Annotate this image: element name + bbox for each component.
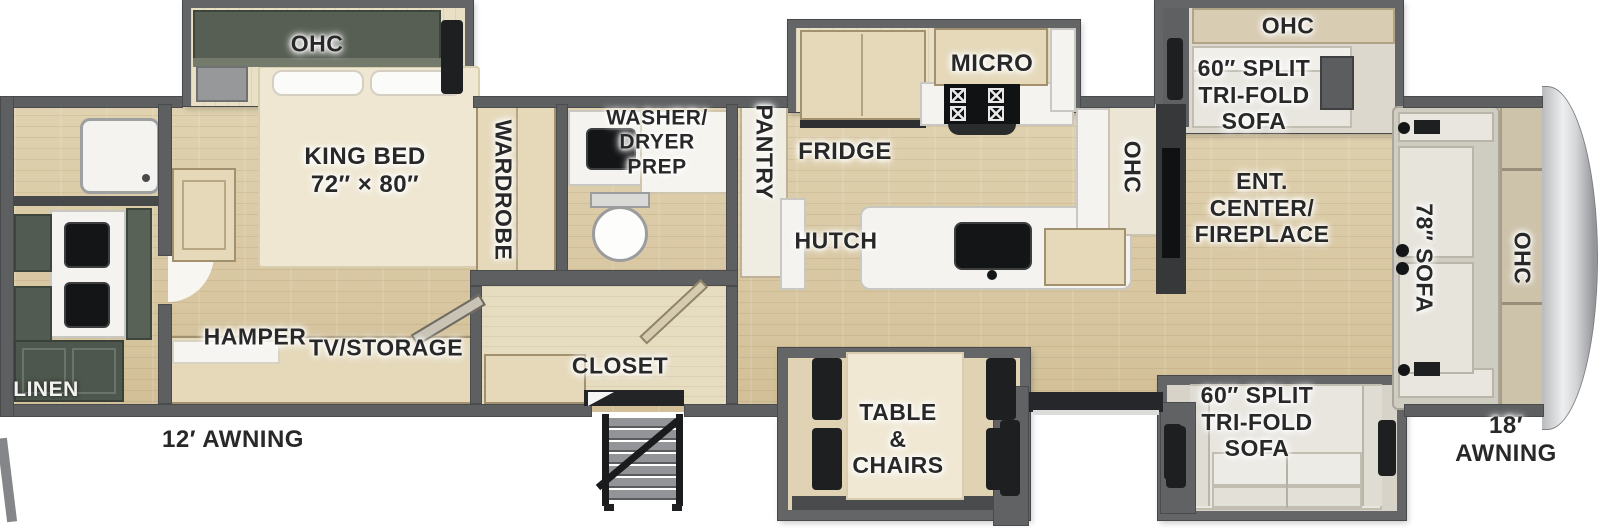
island-base-cabinet <box>1044 228 1126 286</box>
front-sofa-console <box>1414 362 1440 376</box>
entry-step <box>609 478 676 488</box>
entry-steps-rail <box>602 414 609 506</box>
bath-tall-cabinet <box>126 208 152 340</box>
wardrobe-label: WARDROBE <box>490 120 517 261</box>
fridge-counter-strip <box>800 120 926 128</box>
entry-step <box>609 454 676 464</box>
vanity-sink <box>64 222 110 268</box>
rv-floorplan: OHC KING BED 72″ × 80″ WARDROBE WASHER/ … <box>0 0 1600 528</box>
fridge-label: FRIDGE <box>798 138 892 166</box>
front-entry-post-window <box>1166 426 1186 488</box>
bed-pillow <box>272 70 364 96</box>
stove-burner <box>950 106 966 121</box>
front-entry-post-window <box>1000 420 1020 496</box>
stove-burner <box>988 106 1004 121</box>
entry-steps-foot <box>604 504 614 511</box>
front-sofa-label: 78″ SOFA <box>1411 203 1438 313</box>
ent-center-fireplace-label: ENT. CENTER/ FIREPLACE <box>1195 168 1330 248</box>
toilet-bowl <box>592 206 648 262</box>
front-sofa-cupholder <box>1398 364 1410 376</box>
entry-door-swing <box>588 392 614 406</box>
entry-steps-rail <box>676 414 683 506</box>
hamper-label: HAMPER <box>204 324 307 351</box>
kitchen-sink <box>954 222 1032 270</box>
kitchen-slide-counter <box>1050 28 1076 112</box>
shower-wall <box>14 196 162 206</box>
hutch-label: HUTCH <box>795 228 878 255</box>
front-entry-threshold <box>1029 392 1163 412</box>
bottom-sofa-label: 60″ SPLIT TRI-FOLD SOFA <box>1201 382 1314 462</box>
dinette-chair <box>812 428 842 490</box>
fridge-door-split <box>861 34 863 116</box>
mid-bath-wall-left <box>556 104 568 282</box>
front-top-sofa-chaise <box>1320 56 1354 110</box>
bedroom-dresser-panel <box>182 180 226 250</box>
stove-burner <box>950 88 966 103</box>
top-wall <box>1080 96 1155 108</box>
entry-step <box>609 490 676 500</box>
front-sofa-cupholder <box>1396 262 1409 275</box>
front-top-ohc-label: OHC <box>1262 13 1315 40</box>
bottom-slide-window <box>1378 420 1396 476</box>
range-hood <box>948 124 1016 135</box>
front-cap-ohc-seam <box>1502 168 1542 171</box>
mid-bath-wall-right <box>726 104 738 282</box>
medicine-cabinet <box>14 286 52 344</box>
dinette-chair <box>986 358 1016 420</box>
bedroom-ohc-label: OHC <box>291 31 344 58</box>
front-sofa-armrest <box>1398 112 1494 142</box>
bedroom-nightstand <box>196 66 248 102</box>
bottom-wall <box>0 404 592 417</box>
washer-dryer-prep-label: WASHER/ DRYER PREP <box>606 106 708 179</box>
fireplace-insert <box>1162 148 1180 258</box>
top-wall <box>1403 96 1543 108</box>
kitchen-ohc-label: OHC <box>1119 141 1146 194</box>
micro-label: MICRO <box>951 50 1034 78</box>
front-sofa-console <box>1414 120 1440 134</box>
fridge-cabinet <box>800 30 926 120</box>
rear-bumper-accent <box>0 438 17 523</box>
rear-wall <box>0 96 14 417</box>
shower-pan <box>80 118 160 194</box>
stove-burner <box>988 88 1004 103</box>
front-cap <box>1542 86 1598 430</box>
kitchen-faucet <box>987 270 997 280</box>
front-sofa-cupholder <box>1396 244 1409 257</box>
linen-label: LINEN <box>13 378 79 402</box>
vanity-sink <box>64 282 110 328</box>
dinette-label: TABLE & CHAIRS <box>852 399 943 479</box>
closet-wall-right <box>726 286 738 404</box>
bottom-wall <box>684 404 778 417</box>
bedroom-slide-window <box>441 20 463 94</box>
front-cap-ohc-seam <box>1502 302 1542 305</box>
front-top-slide-window <box>1167 38 1183 100</box>
tv-storage-label: TV/STORAGE <box>309 335 463 362</box>
top-sofa-label: 60″ SPLIT TRI-FOLD SOFA <box>1198 55 1311 135</box>
pantry-label: PANTRY <box>751 105 778 200</box>
top-wall <box>0 96 183 108</box>
shower-drain <box>142 174 150 182</box>
closet-bench <box>484 354 586 404</box>
closet-label: CLOSET <box>572 353 668 380</box>
medicine-cabinet <box>14 214 52 272</box>
bath-bedroom-wall <box>158 304 172 404</box>
front-sofa-cupholder <box>1398 122 1410 134</box>
front-entry-step-edge <box>1033 410 1159 415</box>
front-awning-label: 18′ AWNING <box>1455 412 1557 468</box>
king-bed-label: KING BED 72″ × 80″ <box>304 143 425 199</box>
bath-bedroom-wall <box>158 104 172 256</box>
entry-steps-foot <box>672 504 682 511</box>
dinette-chair <box>812 358 842 420</box>
rear-awning-label: 12′ AWNING <box>162 426 304 454</box>
front-cap-ohc-label: OHC <box>1509 232 1536 285</box>
